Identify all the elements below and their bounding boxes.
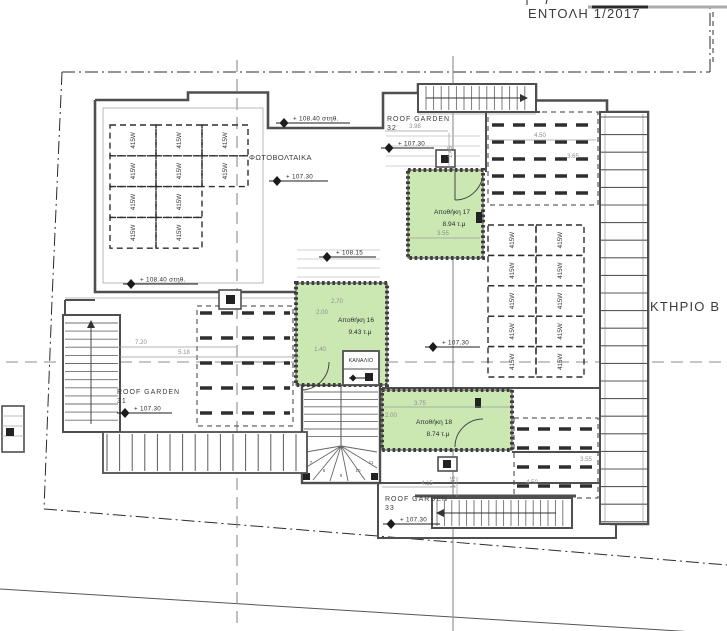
elevation-marker: + 108.40 στηθ. (276, 116, 350, 129)
roof-garden-32-number: 32 (387, 125, 397, 132)
elevation-marker: + 107.30 (381, 141, 434, 154)
dimension-label: 2.70 (331, 299, 343, 305)
wall-mark (475, 398, 481, 408)
solar-panel-grid-right: 415W415W415W415W415W415W415W415W415W415W (488, 225, 584, 377)
solar-panel-label: 415W (130, 132, 137, 149)
room-18-area: 8.74 τ.μ (427, 431, 450, 438)
elevation-marker: + 107.30 (117, 406, 172, 419)
solar-panel-label: 415W (222, 132, 229, 149)
newel-post (303, 473, 310, 480)
dimension-label: 1.45 (448, 146, 454, 158)
elevation-label: + 107.30 (400, 517, 427, 524)
solar-panel-label: 415W (509, 323, 516, 340)
dimension-label: 2.00 (385, 413, 397, 419)
dimension-label: 3.55 (580, 457, 592, 463)
dimension-label: 4.50 (534, 133, 546, 139)
solar-panel-label: 415W (557, 354, 564, 371)
solar-panel-label: 415W (509, 262, 516, 279)
dimension-label: 3.55 (437, 231, 449, 237)
dimension-label: 3.98 (409, 124, 421, 130)
wall-mark (476, 212, 482, 223)
solar-panel-label: 415W (557, 293, 564, 310)
floor-plan-canvas: 415W415W415W415W415W415W415W415W415W415W… (0, 0, 727, 631)
slat-band-frame (103, 432, 307, 473)
dimension-label: 2.00 (316, 310, 328, 316)
solar-panel-label: 415W (509, 354, 516, 371)
solar-panel-label: 415W (222, 163, 229, 180)
solar-panel-label: 415W (509, 293, 516, 310)
solar-panel-label: 415W (509, 232, 516, 249)
dimension-label: 3.65 (567, 154, 579, 160)
dimension-label: 5.18 (178, 350, 190, 356)
roof-garden-33-label: ROOF GARDEN (385, 496, 448, 503)
right-louver-band (600, 112, 648, 524)
elevation-marker: + 108.15 (319, 250, 376, 263)
newel-post (371, 473, 378, 480)
dimension-label: 7.20 (135, 340, 147, 346)
road-line (0, 589, 727, 631)
step-number: 10 (355, 468, 361, 473)
roof-garden-32-label: ROOF GARDEN (387, 116, 450, 123)
elevation-label: + 108.40 στηθ. (140, 277, 186, 284)
kanalio-frame (343, 351, 379, 385)
floor-plan-svg: 415W415W415W415W415W415W415W415W415W415W… (0, 0, 727, 631)
dimension-label: 4.15 (421, 481, 433, 487)
roof-drain (443, 460, 451, 468)
elevation-label: + 107.30 (398, 141, 425, 148)
room-17-area: 8.94 τ.μ (443, 221, 466, 228)
roof-garden-31-number: 31 (117, 398, 127, 405)
dimension-label: 1.45 (451, 476, 457, 488)
kanalio-box: ΚΑΝΑΛΙΟ (343, 351, 379, 385)
kanalio-label: ΚΑΝΑΛΙΟ (349, 358, 373, 364)
edge-structure-mark (6, 428, 14, 436)
room-16-label: Αποθήκη 16 (338, 317, 374, 324)
elevation-label: + 108.40 στηθ. (293, 116, 339, 123)
elevation-label: + 108.15 (336, 250, 363, 257)
solar-panel-label: 415W (176, 163, 183, 180)
dimension-label: 1.40 (314, 347, 326, 353)
elevation-label: + 107.30 (442, 340, 469, 347)
solar-panel-label: 415W (176, 225, 183, 242)
photovoltaics-label: ΦΩΤΟΒΟΛΤΑΙΚΑ (249, 153, 312, 162)
building-label: ΚΤΗΡΙΟ Β (650, 299, 720, 314)
dimension-label: 3.75 (414, 401, 426, 407)
west-wall (95, 100, 296, 292)
room-18-label: Αποθήκη 18 (416, 419, 452, 426)
solar-panel-grid-left: 415W415W415W415W415W415W415W415W415W415W (110, 125, 248, 248)
slat-band-group (103, 432, 307, 473)
elevation-marker: + 107.30 (269, 174, 328, 187)
elevation-label: + 107.30 (286, 174, 313, 181)
solar-panel-label: 415W (557, 262, 564, 279)
solar-panel-label: 415W (176, 132, 183, 149)
room-17-label: Αποθήκη 17 (434, 209, 470, 216)
step-number: 11 (369, 460, 374, 465)
dimension-label: 4.50 (526, 480, 538, 486)
louver-band-frame (600, 112, 648, 524)
elevation-label: + 107.30 (134, 406, 161, 413)
solar-panel-label: 415W (557, 232, 564, 249)
pergola-beams-mid-left (200, 313, 290, 413)
room-16-area: 9.43 τ.μ (349, 329, 372, 336)
sheet-mark (546, 0, 547, 4)
roof-garden-33-number: 33 (385, 505, 395, 512)
pergola-border-mid-left (197, 306, 293, 426)
kanalio-fixture (365, 373, 373, 381)
roof-drain (226, 295, 235, 304)
solar-panel-label: 415W (130, 194, 137, 211)
roof-garden-31-label: ROOF GARDEN (117, 389, 180, 396)
solar-panel-label: 415W (557, 323, 564, 340)
left-stair-block (63, 315, 120, 432)
solar-panel-label: 415W (176, 194, 183, 211)
solar-panel-label: 415W (130, 225, 137, 242)
sheet-title: ΕΝΤΟΛΗ 1/2017 (528, 6, 641, 21)
solar-panel-label: 415W (130, 163, 137, 180)
